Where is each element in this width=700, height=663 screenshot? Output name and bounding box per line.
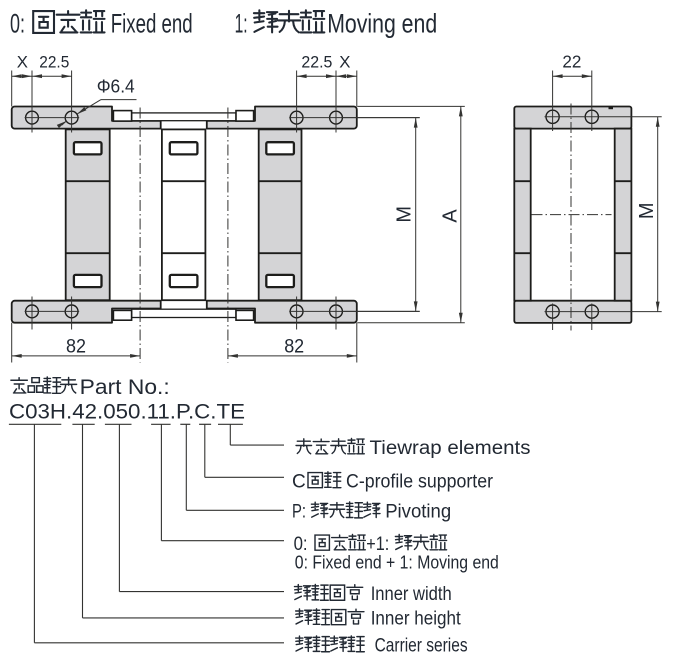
svg-text:Inner height: Inner height	[371, 608, 462, 629]
svg-text:A: A	[440, 209, 462, 223]
svg-text:0:: 0:	[10, 8, 25, 38]
svg-text:0: Fixed end + 1: Moving end: 0: Fixed end + 1: Moving end	[295, 553, 499, 573]
svg-text:22.5: 22.5	[39, 52, 69, 71]
svg-text:Carrier series: Carrier series	[375, 635, 468, 656]
svg-text:Fixed end: Fixed end	[111, 8, 193, 38]
svg-text:Inner width: Inner width	[371, 584, 452, 605]
svg-text:22.5: 22.5	[301, 52, 332, 71]
svg-text:Tiewrap elements: Tiewrap elements	[370, 438, 531, 459]
svg-text:Φ6.4: Φ6.4	[97, 76, 135, 96]
svg-text:82: 82	[66, 336, 86, 358]
svg-text:82: 82	[284, 336, 304, 358]
svg-text:1:: 1:	[235, 8, 248, 38]
svg-text:X: X	[17, 52, 28, 71]
svg-text:Part No.:: Part No.:	[80, 375, 170, 399]
svg-text:Moving end: Moving end	[327, 8, 437, 38]
svg-text:Pivoting: Pivoting	[385, 502, 451, 523]
svg-text:M: M	[636, 202, 658, 219]
svg-text:M: M	[394, 206, 416, 223]
svg-text:C03H.42.050.11.P.C.TE: C03H.42.050.11.P.C.TE	[9, 400, 245, 424]
svg-text:22: 22	[562, 52, 581, 72]
svg-text:C-profile supporter: C-profile supporter	[346, 471, 494, 492]
svg-text:C: C	[292, 471, 306, 492]
svg-text:P:: P:	[292, 502, 306, 523]
svg-text:X: X	[339, 52, 350, 71]
